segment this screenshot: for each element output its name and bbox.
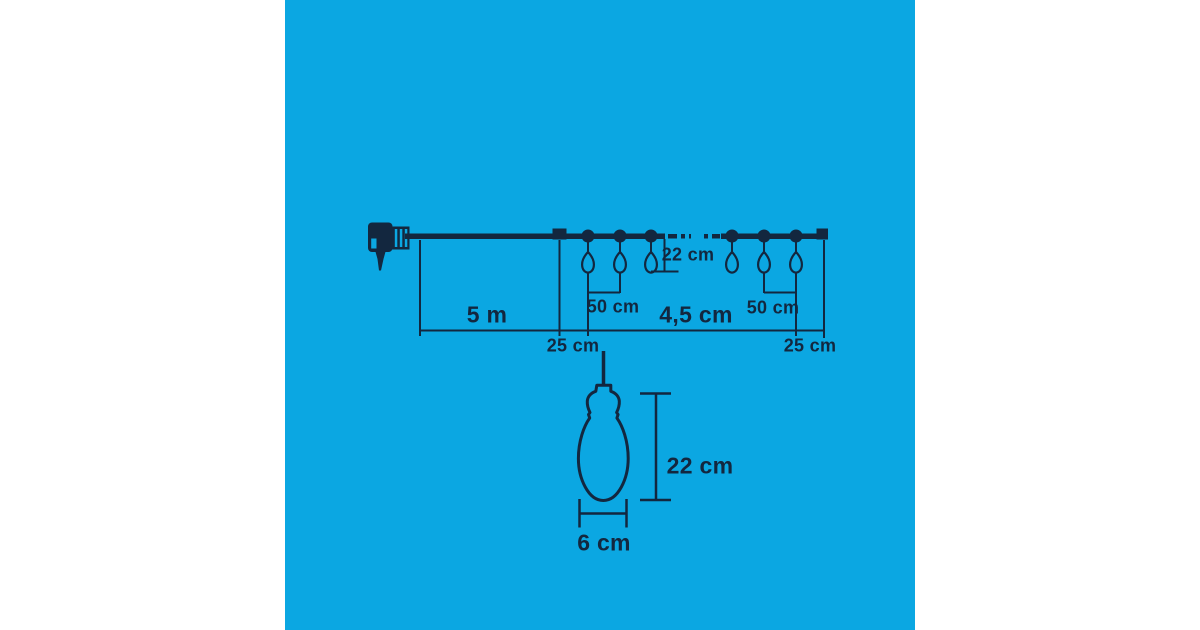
end-cap-square: [817, 229, 829, 240]
bulb-width-dimension: [579, 499, 627, 528]
power-plug-icon: [368, 223, 410, 271]
bulb-detail-icon: [578, 351, 671, 528]
drop-height-label: 22 cm: [662, 245, 715, 266]
start-offset-label: 25 cm: [547, 336, 600, 357]
bulb-spacing-label-right: 50 cm: [747, 298, 800, 319]
lead-length-label: 5 m: [467, 302, 508, 329]
product-dimension-diagram: 5 m 4,5 cm 25 cm 25 cm 50 cm 50 cm 22 cm…: [285, 0, 915, 630]
bulb-height-dimension: [640, 394, 671, 501]
bulb-width-label: 6 cm: [577, 530, 631, 557]
drop-bulb-icon: [726, 230, 739, 273]
drop-bulb-icon: [582, 230, 595, 273]
bulb-spacing-label-left: 50 cm: [587, 297, 640, 318]
end-offset-label: 25 cm: [784, 336, 837, 357]
drop-bulb-icon: [645, 230, 658, 273]
drop-bulb-icon: [790, 230, 803, 273]
drop-bulb-icon: [758, 230, 771, 273]
connector-square: [553, 229, 567, 240]
bulb-height-label: 22 cm: [667, 453, 734, 480]
page-background: 5 m 4,5 cm 25 cm 25 cm 50 cm 50 cm 22 cm…: [0, 0, 1200, 630]
total-length-label: 4,5 cm: [659, 302, 732, 329]
drop-bulb-icon: [614, 230, 627, 273]
